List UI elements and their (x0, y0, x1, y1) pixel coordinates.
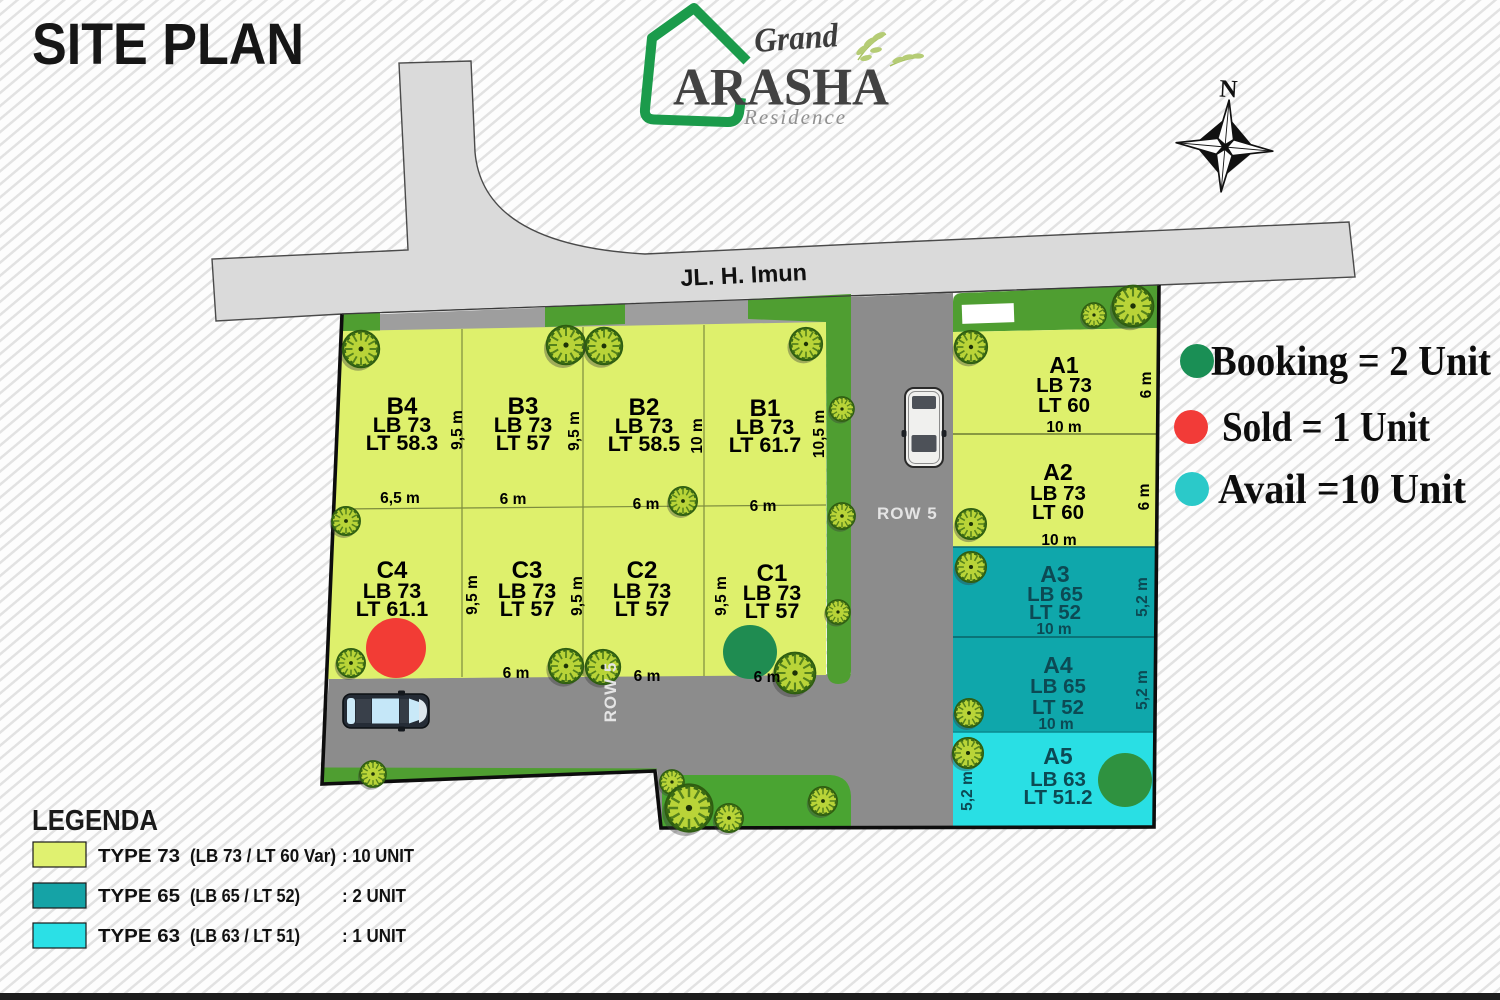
svg-text:9,5 m: 9,5 m (713, 576, 730, 616)
svg-text:9,5 m: 9,5 m (569, 576, 586, 616)
svg-text:10,5 m: 10,5 m (811, 410, 828, 458)
svg-text:LT 51.2: LT 51.2 (1023, 786, 1092, 809)
svg-text:Avail =10 Unit: Avail =10 Unit (1218, 467, 1466, 513)
svg-text:: 10 UNIT: : 10 UNIT (342, 845, 415, 866)
svg-text:LT 61.1: LT 61.1 (356, 597, 429, 621)
svg-text:(LB 73 / LT 60 Var): (LB 73 / LT 60 Var) (190, 845, 336, 866)
svg-text:LT 57: LT 57 (496, 431, 551, 455)
svg-text:TYPE 63: TYPE 63 (98, 925, 180, 946)
svg-text:SITE PLAN: SITE PLAN (32, 12, 304, 77)
svg-text:5,2 m: 5,2 m (1134, 577, 1151, 617)
svg-text:10 m: 10 m (1036, 621, 1071, 638)
svg-text:: 2 UNIT: : 2 UNIT (342, 885, 407, 906)
svg-text:5,2 m: 5,2 m (959, 771, 976, 811)
svg-text:6 m: 6 m (633, 496, 660, 513)
svg-text:10 m: 10 m (1041, 532, 1076, 549)
svg-text:Sold = 1 Unit: Sold = 1 Unit (1222, 405, 1430, 451)
svg-text:10 m: 10 m (689, 418, 706, 453)
svg-text:ROW 5: ROW 5 (877, 504, 938, 523)
svg-text:10 m: 10 m (1046, 419, 1081, 436)
svg-text:LT 57: LT 57 (615, 597, 670, 621)
svg-text:Grand: Grand (753, 17, 840, 60)
svg-text:Booking = 2 Unit: Booking = 2 Unit (1211, 339, 1491, 385)
svg-text:LEGENDA: LEGENDA (32, 805, 158, 837)
svg-text:LT 60: LT 60 (1038, 394, 1090, 417)
svg-text:TYPE 65: TYPE 65 (98, 885, 180, 906)
svg-text:(LB 63 / LT 51): (LB 63 / LT 51) (190, 925, 300, 946)
svg-text:A5: A5 (1043, 743, 1073, 769)
svg-text:6 m: 6 m (1138, 372, 1155, 399)
svg-text:LT 58.3: LT 58.3 (366, 431, 439, 455)
svg-text:6 m: 6 m (754, 669, 781, 686)
svg-text:(LB 65 / LT 52): (LB 65 / LT 52) (190, 885, 300, 906)
svg-text:6 m: 6 m (750, 498, 777, 515)
svg-text:LT 57: LT 57 (745, 599, 800, 623)
svg-text:LT 61.7: LT 61.7 (729, 433, 802, 457)
svg-text:: 1 UNIT: : 1 UNIT (342, 925, 407, 946)
svg-text:6 m: 6 m (1136, 484, 1153, 511)
svg-text:6 m: 6 m (503, 665, 530, 682)
svg-text:10 m: 10 m (1038, 716, 1073, 733)
svg-text:ROW 5: ROW 5 (601, 662, 620, 723)
svg-text:9,5 m: 9,5 m (464, 575, 481, 615)
svg-text:5,2 m: 5,2 m (1134, 670, 1151, 710)
svg-text:9,5 m: 9,5 m (566, 411, 583, 451)
svg-text:9,5 m: 9,5 m (449, 410, 466, 450)
svg-text:N: N (1219, 76, 1238, 104)
svg-text:Residence: Residence (743, 105, 847, 129)
svg-text:LB 65: LB 65 (1030, 675, 1086, 698)
svg-text:TYPE 73: TYPE 73 (98, 845, 180, 866)
svg-text:6 m: 6 m (500, 491, 527, 508)
svg-text:6,5 m: 6,5 m (380, 490, 420, 507)
svg-text:LT 57: LT 57 (500, 597, 555, 621)
svg-text:LT 60: LT 60 (1032, 501, 1084, 524)
svg-text:LT 58.5: LT 58.5 (608, 432, 681, 456)
svg-text:6 m: 6 m (634, 668, 661, 685)
